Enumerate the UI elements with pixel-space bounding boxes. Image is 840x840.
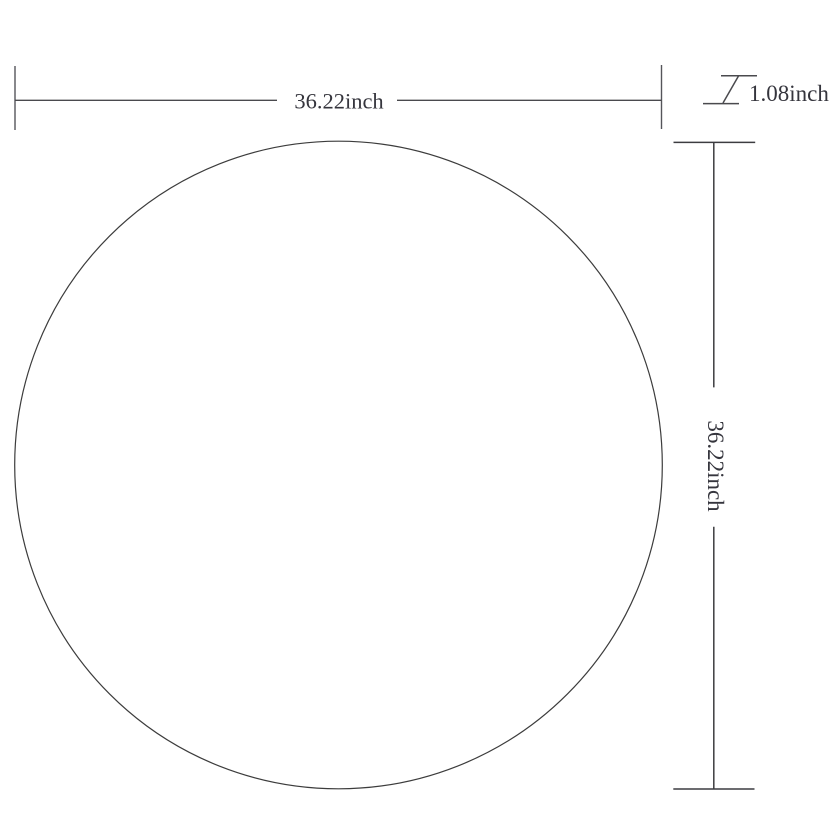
svg-text:36.22inch: 36.22inch [294, 89, 383, 114]
svg-text:36.22inch: 36.22inch [703, 420, 728, 512]
svg-text:1.08inch: 1.08inch [749, 81, 829, 106]
